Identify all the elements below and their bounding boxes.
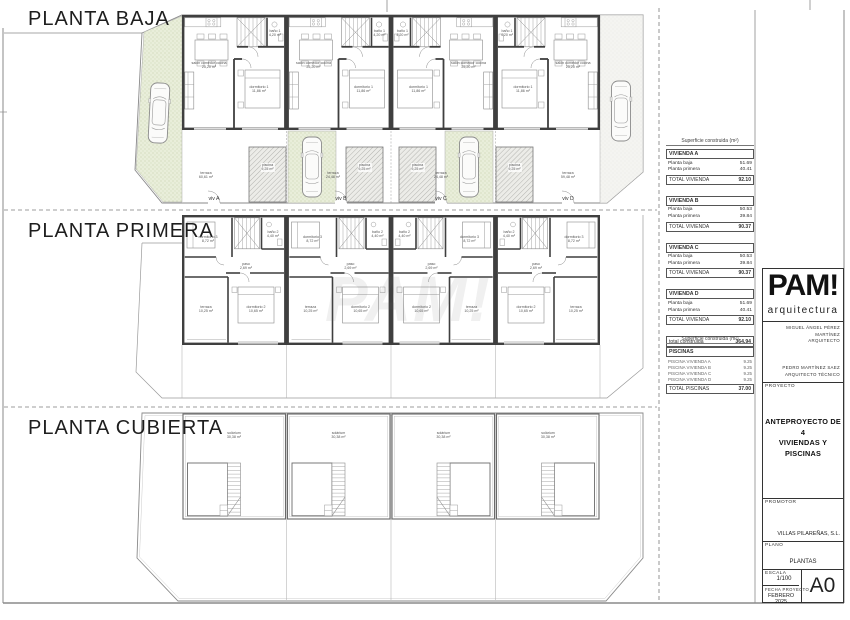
pool-table-title: PISCINAS xyxy=(666,347,754,357)
architect-name: MIGUEL ÁNGEL PÉREZ MARTÍNEZ xyxy=(763,325,840,338)
sheet-size: A0 xyxy=(801,569,843,602)
total-piscinas-row: TOTAL PISCINAS 37.00 xyxy=(666,384,754,394)
unit-cubierta-c xyxy=(392,414,495,519)
vivienda-group-title: VIVIENDA A xyxy=(666,149,754,159)
unit-cubierta-b xyxy=(288,414,391,519)
pool-d xyxy=(496,147,533,202)
pool-a xyxy=(249,147,286,202)
unit-primera-c xyxy=(392,216,494,344)
area-row: Planta baja51.69 xyxy=(666,160,754,167)
vivienda-entry-label: viv B xyxy=(335,196,346,202)
unit-primera-b xyxy=(288,216,390,344)
section-title-planta-cubierta: PLANTA CUBIERTA xyxy=(28,417,223,440)
area-row: Planta primera40.41 xyxy=(666,167,754,174)
plano-value: PLANTAS xyxy=(763,559,843,565)
plan-cubierta xyxy=(137,413,643,601)
vivienda-entry-label: viv C xyxy=(435,196,447,202)
piscina-row: PISCINA VIVIENDA D9.25 xyxy=(666,377,754,383)
architect-block: MIGUEL ÁNGEL PÉREZ MARTÍNEZ ARQUITECTO xyxy=(763,325,840,345)
studio-logo: PAM! xyxy=(763,271,843,301)
area-row: Planta primera39.84 xyxy=(666,214,754,221)
area-table-header: Superficie construida (m²) xyxy=(666,138,754,146)
technical-architect-block: PEDRO MARTÍNEZ SAEZ ARQUITECTO TÉCNICO xyxy=(782,365,840,378)
vivienda-group-title: VIVIENDA D xyxy=(666,289,754,299)
vivienda-group-title: VIVIENDA B xyxy=(666,196,754,206)
architect-role: ARQUITECTO xyxy=(763,338,840,345)
vivienda-entry-label: viv D xyxy=(562,196,574,202)
unit-baja-c xyxy=(392,16,494,130)
plan-baja xyxy=(4,15,643,205)
proyecto-label: PROYECTO xyxy=(765,384,795,389)
vivienda-total-row: TOTAL VIVIENDA90.37 xyxy=(666,268,754,278)
area-row: Planta baja50.53 xyxy=(666,207,754,214)
unit-baja-d xyxy=(497,16,599,130)
vivienda-group: VIVIENDA CPlanta baja50.53Planta primera… xyxy=(666,243,754,279)
section-title-planta-baja: PLANTA BAJA xyxy=(28,8,170,31)
vivienda-total-row: TOTAL VIVIENDA92.10 xyxy=(666,315,754,325)
vivienda-total-row: TOTAL VIVIENDA90.37 xyxy=(666,222,754,232)
fecha-value: FEBRERO 2025 xyxy=(763,593,799,605)
unit-primera-d xyxy=(497,216,599,344)
vivienda-group: VIVIENDA BPlanta baja50.53Planta primera… xyxy=(666,196,754,232)
technical-architect-role: ARQUITECTO TÉCNICO xyxy=(782,372,840,379)
unit-cubierta-d xyxy=(497,414,600,519)
car-icon xyxy=(301,137,323,197)
studio-logo-sub: arquitectura xyxy=(763,305,843,316)
pool-table-header: Superficie construida (m²) xyxy=(666,336,754,344)
drawing-sheet: { "sections": { "baja": "PLANTA BAJA", "… xyxy=(0,0,850,620)
pool-b xyxy=(346,147,383,202)
plano-label: PLANO xyxy=(765,543,783,548)
pools-summary-table: Superficie construida (m²) PISCINAS PISC… xyxy=(666,336,754,394)
vivienda-group-title: VIVIENDA C xyxy=(666,243,754,253)
car-icon xyxy=(458,137,480,197)
area-row: Planta primera39.84 xyxy=(666,260,754,267)
vivienda-group: VIVIENDA DPlanta baja51.69Planta primera… xyxy=(666,289,754,325)
title-block: PAM! arquitectura MIGUEL ÁNGEL PÉREZ MAR… xyxy=(762,268,844,603)
promotor-value: VILLAS PILAREÑAS, S.L. xyxy=(777,531,840,537)
car-icon xyxy=(147,82,172,143)
area-summary-table: Superficie construida (m²) VIVIENDA APla… xyxy=(666,138,754,347)
pool-c xyxy=(399,147,436,202)
unit-baja-b xyxy=(288,16,390,130)
project-title: ANTEPROYECTO DE 4 VIVIENDAS Y PISCINAS xyxy=(763,417,843,459)
vivienda-total-row: TOTAL VIVIENDA92.10 xyxy=(666,175,754,185)
area-row: Planta primera40.41 xyxy=(666,307,754,314)
area-row: Planta baja51.69 xyxy=(666,300,754,307)
car-icon xyxy=(610,81,632,141)
technical-architect-name: PEDRO MARTÍNEZ SAEZ xyxy=(782,365,840,372)
unit-baja-a xyxy=(183,16,285,130)
vivienda-group: VIVIENDA APlanta baja51.69Planta primera… xyxy=(666,149,754,185)
escala-value: 1/100 xyxy=(769,576,799,582)
section-title-planta-primera: PLANTA PRIMERA xyxy=(28,220,214,243)
area-row: Planta baja50.53 xyxy=(666,254,754,261)
promotor-label: PROMOTOR xyxy=(765,500,796,505)
vivienda-entry-label: viv A xyxy=(209,196,220,202)
